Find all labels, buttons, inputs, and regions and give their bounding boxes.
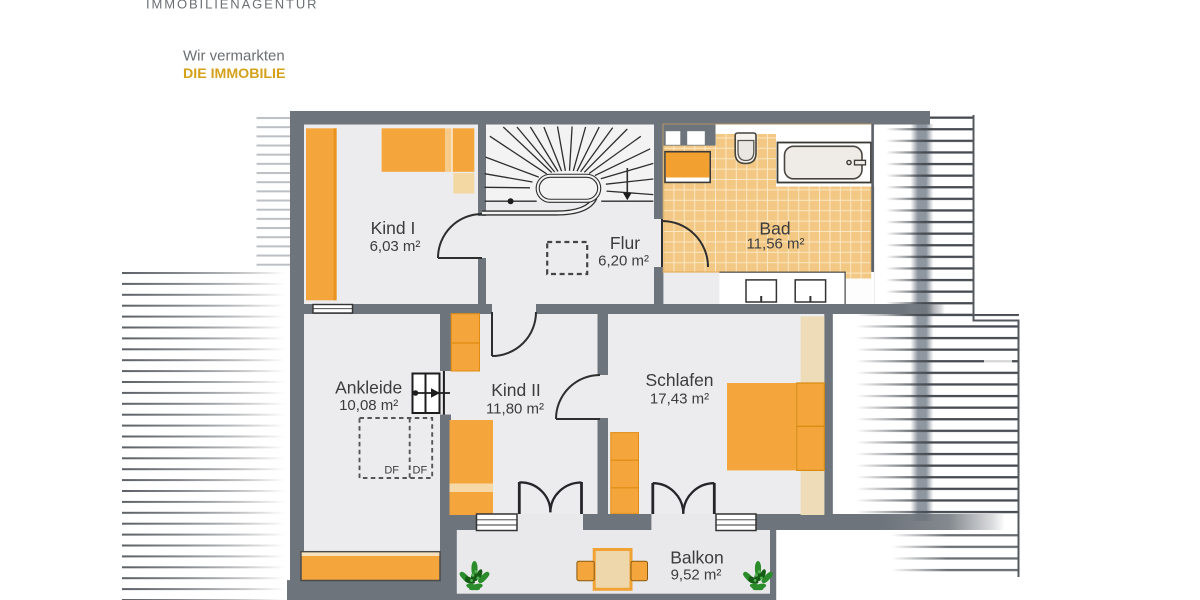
svg-text:Kind I: Kind I <box>371 218 416 238</box>
svg-text:10,08 m²: 10,08 m² <box>339 397 398 414</box>
svg-text:IMMOBILIENAGENTUR: IMMOBILIENAGENTUR <box>146 0 318 11</box>
svg-text:17,43 m²: 17,43 m² <box>650 391 709 408</box>
svg-text:Kind II: Kind II <box>491 380 541 400</box>
svg-text:9,52 m²: 9,52 m² <box>671 567 722 584</box>
svg-text:Wir vermarkten: Wir vermarkten <box>183 48 285 65</box>
svg-text:Flur: Flur <box>610 233 640 253</box>
svg-text:11,56 m²: 11,56 m² <box>746 236 804 253</box>
svg-text:DF: DF <box>384 465 399 477</box>
svg-text:DIE IMMOBILIE: DIE IMMOBILIE <box>183 66 285 82</box>
svg-text:Ankleide: Ankleide <box>335 377 402 397</box>
svg-text:DF: DF <box>413 465 428 477</box>
svg-text:6,20 m²: 6,20 m² <box>598 253 649 270</box>
svg-text:11,80 m²: 11,80 m² <box>486 401 544 418</box>
svg-text:6,03 m²: 6,03 m² <box>370 238 421 255</box>
svg-text:Schlafen: Schlafen <box>645 370 713 390</box>
svg-text:Balkon: Balkon <box>670 548 724 568</box>
